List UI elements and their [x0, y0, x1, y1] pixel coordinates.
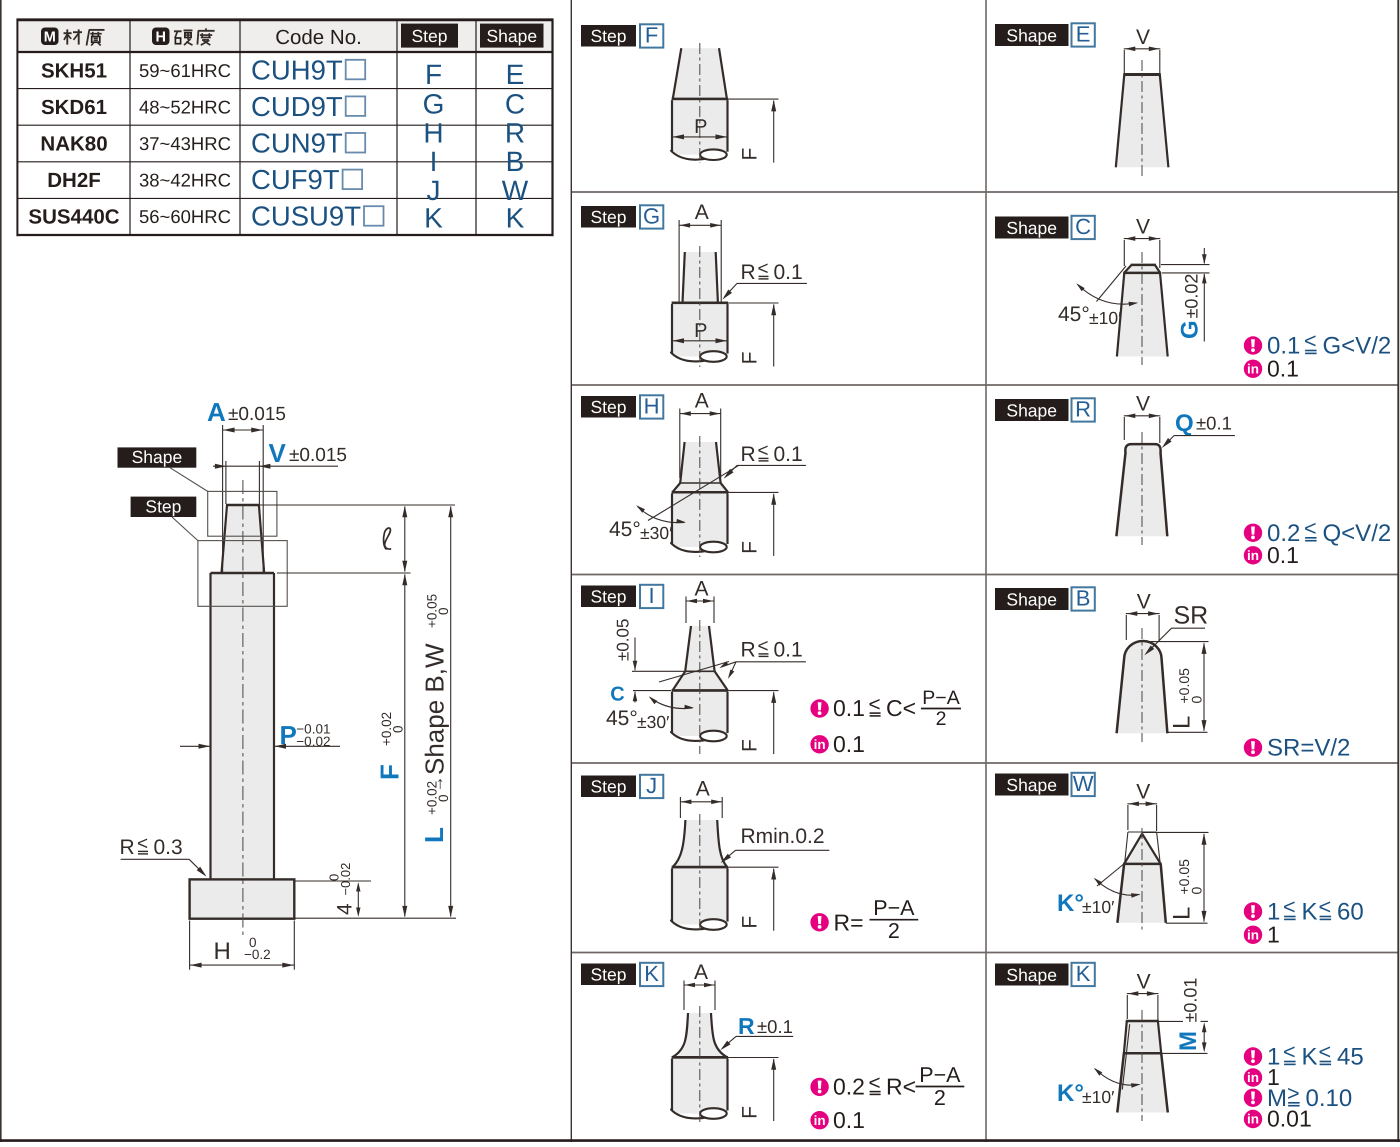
svg-text:CUH9T: CUH9T: [251, 54, 343, 85]
svg-text:V: V: [1136, 393, 1150, 416]
svg-text:F: F: [739, 541, 762, 554]
svg-text:G: G: [1177, 320, 1204, 339]
svg-text:38~42HRC: 38~42HRC: [139, 170, 231, 191]
svg-text:Shape: Shape: [1006, 25, 1057, 45]
svg-text:→: →: [428, 776, 447, 793]
svg-text:2: 2: [888, 919, 900, 943]
svg-text:CUN9T: CUN9T: [251, 128, 343, 159]
svg-text:P−A: P−A: [873, 896, 915, 920]
svg-text:Step: Step: [145, 496, 181, 516]
svg-text:K°: K°: [1057, 890, 1084, 917]
svg-text:48~52HRC: 48~52HRC: [139, 96, 231, 117]
svg-text:Shape: Shape: [1006, 400, 1057, 420]
svg-text:Shape: Shape: [132, 447, 183, 467]
svg-text:K: K: [1302, 1044, 1318, 1071]
svg-text:M: M: [44, 30, 56, 46]
svg-text:±10′: ±10′: [1089, 308, 1121, 328]
svg-text:P−A: P−A: [922, 687, 959, 709]
svg-text:in: in: [814, 737, 826, 752]
svg-text:<: <: [1319, 894, 1332, 919]
svg-text:0.10: 0.10: [1306, 1085, 1353, 1112]
svg-text:F: F: [739, 739, 762, 752]
svg-text:0.1: 0.1: [774, 443, 803, 466]
svg-text:0.1: 0.1: [774, 261, 803, 284]
svg-text:J: J: [427, 175, 441, 206]
svg-text:V: V: [1136, 216, 1150, 239]
svg-text:R: R: [505, 117, 525, 148]
svg-text:0: 0: [1188, 696, 1204, 704]
svg-text:±30′: ±30′: [637, 712, 669, 732]
svg-text:K: K: [1076, 961, 1091, 986]
svg-text:E: E: [506, 59, 525, 90]
svg-text:R=: R=: [834, 910, 864, 936]
svg-text:I: I: [430, 146, 438, 177]
svg-text:A: A: [695, 201, 709, 224]
svg-text:M: M: [1175, 1031, 1202, 1051]
svg-text:±0.02: ±0.02: [1182, 274, 1202, 319]
svg-text:Step: Step: [591, 965, 627, 985]
svg-text:W: W: [502, 175, 529, 206]
svg-text:<: <: [1304, 328, 1317, 353]
svg-text:J: J: [646, 773, 657, 798]
svg-text:SKD61: SKD61: [41, 96, 107, 119]
svg-text:0.1: 0.1: [833, 1107, 865, 1133]
svg-text:in: in: [1247, 1070, 1259, 1085]
svg-text:SR=V/2: SR=V/2: [1267, 735, 1350, 762]
svg-text:in: in: [814, 1113, 826, 1128]
svg-text:G<V/2: G<V/2: [1323, 333, 1392, 360]
svg-text:V: V: [269, 438, 287, 468]
svg-text:±10′: ±10′: [1082, 897, 1114, 917]
svg-text:in: in: [1247, 548, 1259, 563]
svg-text:A: A: [694, 961, 708, 984]
svg-text:59~61HRC: 59~61HRC: [139, 60, 231, 81]
svg-text:K: K: [644, 961, 659, 986]
svg-text:F: F: [645, 23, 658, 48]
svg-text:Step: Step: [591, 26, 627, 46]
svg-text:56~60HRC: 56~60HRC: [139, 206, 231, 227]
svg-text:45: 45: [1337, 1044, 1364, 1071]
svg-text:L: L: [1169, 907, 1196, 920]
svg-text:C: C: [505, 88, 525, 119]
svg-text:±0.01: ±0.01: [1181, 978, 1201, 1023]
svg-text:C: C: [610, 684, 624, 706]
svg-text:±0.05: ±0.05: [614, 619, 633, 661]
svg-text:45°: 45°: [606, 707, 638, 730]
svg-text:H: H: [156, 30, 166, 46]
svg-text:SKH51: SKH51: [41, 59, 107, 82]
svg-text:H: H: [214, 938, 231, 965]
svg-text:Step: Step: [591, 397, 627, 417]
svg-text:G: G: [643, 204, 660, 229]
svg-text:F: F: [425, 59, 442, 90]
svg-text:0.2: 0.2: [833, 1074, 865, 1100]
svg-text:±30′: ±30′: [640, 523, 672, 543]
svg-text:Step: Step: [591, 777, 627, 797]
svg-text:P−A: P−A: [919, 1063, 961, 1087]
svg-text:0.01: 0.01: [1267, 1106, 1312, 1132]
svg-text:0.1: 0.1: [833, 695, 865, 721]
svg-text:H: H: [644, 394, 660, 419]
svg-text:F: F: [739, 1106, 762, 1119]
svg-text:Step: Step: [591, 207, 627, 227]
svg-text:±0.015: ±0.015: [228, 404, 286, 425]
svg-text:V: V: [1136, 781, 1150, 804]
svg-text:Shape B,W: Shape B,W: [420, 643, 450, 775]
svg-text:in: in: [1247, 1112, 1259, 1127]
svg-text:0: 0: [1188, 887, 1204, 895]
svg-text:B: B: [1076, 586, 1091, 611]
svg-text:in: in: [1247, 361, 1259, 376]
svg-text:45°: 45°: [609, 518, 641, 541]
svg-text:45°: 45°: [1058, 303, 1090, 326]
svg-text:±0.1: ±0.1: [757, 1016, 793, 1037]
svg-text:I: I: [649, 583, 655, 608]
svg-text:R: R: [1075, 397, 1091, 422]
svg-text:R<: R<: [886, 1074, 916, 1100]
svg-text:SR: SR: [1174, 602, 1209, 630]
svg-text:Code No.: Code No.: [275, 26, 362, 49]
svg-text:Rmin.0.2: Rmin.0.2: [741, 825, 825, 848]
svg-text:Shape: Shape: [1006, 218, 1057, 238]
svg-text:C<: C<: [886, 695, 916, 721]
svg-text:60: 60: [1337, 899, 1364, 926]
svg-text:L: L: [1169, 716, 1196, 729]
svg-text:Shape: Shape: [486, 26, 537, 46]
svg-text:0.3: 0.3: [154, 836, 183, 859]
svg-text:F: F: [375, 764, 405, 780]
svg-text:0.1: 0.1: [1267, 542, 1299, 568]
svg-text:P: P: [694, 116, 707, 138]
svg-text:0: 0: [436, 794, 451, 802]
svg-text:Shape: Shape: [1006, 775, 1057, 795]
svg-text:C: C: [1075, 214, 1091, 239]
svg-text:−0.2: −0.2: [244, 947, 271, 962]
svg-text:2: 2: [934, 1086, 946, 1110]
svg-text:K: K: [424, 202, 443, 233]
svg-text:0.1: 0.1: [833, 731, 865, 757]
svg-text:CUSU9T: CUSU9T: [251, 201, 361, 232]
svg-text:0: 0: [391, 725, 406, 733]
svg-text:<: <: [1319, 1039, 1332, 1064]
svg-text:±0.1: ±0.1: [1196, 413, 1232, 434]
svg-text:H: H: [423, 117, 443, 148]
svg-text:1: 1: [1267, 922, 1280, 948]
svg-text:0.1: 0.1: [774, 639, 803, 662]
svg-text:B: B: [506, 146, 525, 177]
svg-text:F: F: [739, 148, 762, 161]
svg-text:in: in: [1247, 927, 1259, 942]
svg-text:0.1: 0.1: [1267, 356, 1299, 382]
svg-text:A: A: [207, 397, 226, 427]
svg-text:4: 4: [334, 903, 357, 915]
svg-text:0: 0: [436, 607, 451, 615]
svg-text:<: <: [1304, 516, 1317, 541]
svg-text:V: V: [1137, 591, 1151, 614]
svg-text:A: A: [696, 778, 710, 801]
svg-text:W: W: [1073, 771, 1094, 796]
svg-text:P: P: [694, 320, 707, 342]
svg-text:CUF9T: CUF9T: [251, 164, 340, 195]
svg-text:R: R: [741, 443, 756, 466]
svg-text:R: R: [741, 261, 756, 284]
svg-text:K: K: [1302, 899, 1318, 926]
svg-text:<: <: [1283, 894, 1296, 919]
svg-text:−0.02: −0.02: [338, 863, 353, 896]
svg-text:R: R: [120, 836, 135, 859]
svg-text:Q: Q: [1175, 410, 1194, 437]
svg-text:CUD9T: CUD9T: [251, 91, 343, 122]
svg-text:K: K: [506, 202, 525, 233]
svg-text:±10′: ±10′: [1082, 1087, 1114, 1107]
svg-text:L: L: [419, 827, 449, 843]
svg-text:A: A: [695, 390, 709, 413]
svg-text:Shape: Shape: [1006, 965, 1057, 985]
svg-text:Step: Step: [591, 587, 627, 607]
svg-text:2: 2: [936, 708, 947, 730]
svg-text:R: R: [741, 639, 756, 662]
svg-text:G: G: [423, 88, 445, 119]
svg-text:±0.015: ±0.015: [289, 445, 347, 466]
svg-text:F: F: [739, 352, 762, 365]
svg-text:Q<V/2: Q<V/2: [1323, 520, 1392, 547]
svg-text:NAK80: NAK80: [40, 133, 107, 156]
svg-text:SUS440C: SUS440C: [28, 206, 119, 229]
svg-text:F: F: [739, 916, 762, 929]
svg-text:DH2F: DH2F: [47, 169, 101, 192]
svg-text:Step: Step: [412, 26, 448, 46]
svg-text:E: E: [1076, 22, 1091, 47]
svg-text:<: <: [1283, 1039, 1296, 1064]
svg-text:A: A: [694, 578, 708, 601]
svg-text:37~43HRC: 37~43HRC: [139, 133, 231, 154]
svg-text:>: >: [1287, 1081, 1300, 1106]
svg-text:R: R: [738, 1013, 755, 1039]
svg-text:K°: K°: [1057, 1080, 1084, 1107]
svg-text:Shape: Shape: [1006, 589, 1057, 609]
svg-text:V: V: [1136, 26, 1150, 49]
svg-text:V: V: [1137, 971, 1151, 994]
